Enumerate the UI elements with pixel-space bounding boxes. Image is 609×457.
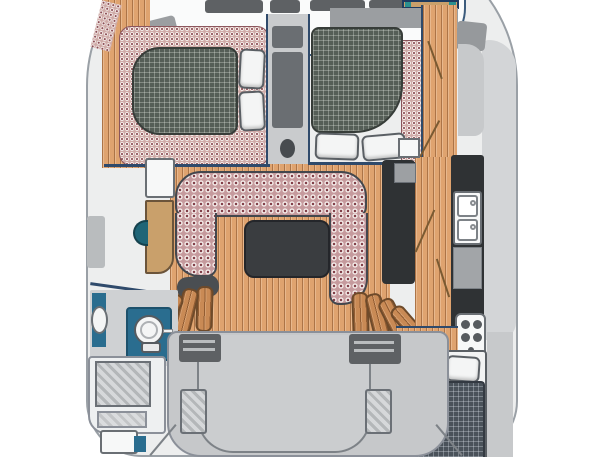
- console-locker-2: [272, 52, 303, 128]
- aft-stbd-hull-edge: [487, 332, 513, 457]
- shower-step: [97, 411, 147, 428]
- fwd-stbd-pillow-1: [315, 132, 360, 161]
- transom-step-port: [100, 430, 138, 454]
- hull-starboard-side-band: [482, 40, 516, 340]
- fwd-port-mattress: [132, 47, 238, 135]
- galley-sink-basin-2: [457, 219, 478, 241]
- shower-pan: [95, 361, 151, 407]
- fwd-port-pillow-1: [238, 48, 266, 89]
- companionway-door-port: [179, 334, 221, 362]
- settee-left-arm: [175, 213, 217, 277]
- door-stbd-tread-2: [354, 349, 394, 352]
- toilet-seat-ring: [140, 321, 158, 339]
- door-stbd-tread-1: [354, 341, 394, 344]
- salon-table: [244, 220, 330, 278]
- deck-hatch-2: [270, 0, 300, 13]
- deck-hatch-1: [205, 0, 263, 13]
- fwd-stbd-mattress: [311, 27, 403, 133]
- galley-sink-basin-1: [457, 195, 478, 217]
- bulkhead-port-fwd: [104, 164, 270, 167]
- galley-faucet-dot-2: [470, 224, 476, 230]
- galley-gray-locker: [394, 163, 416, 183]
- engine-hatch-port: [180, 389, 207, 434]
- stove-burner-4: [473, 333, 482, 342]
- salon-cabinet: [145, 200, 174, 274]
- engine-hatch-stbd: [365, 389, 392, 434]
- settee-top: [175, 171, 367, 217]
- door-port-tread-2: [183, 348, 215, 351]
- toilet-base: [141, 342, 161, 353]
- galley-appliance-small: [398, 138, 420, 158]
- companionway-door-stbd: [349, 334, 401, 364]
- fridge: [145, 158, 175, 198]
- stove-burner-3: [461, 333, 470, 342]
- cockpit-inner-floor: [197, 335, 371, 453]
- fwd-port-pillow-2: [238, 90, 266, 131]
- transom-teal-accent: [134, 436, 146, 452]
- galley-counter-gray-mid: [453, 247, 482, 289]
- stove-burner-1: [461, 320, 470, 329]
- door-port-tread-1: [183, 340, 215, 343]
- anchor-locker-teal-left: [405, 2, 411, 7]
- galley-faucet-dot-1: [470, 200, 476, 206]
- hull-port-side-locker: [87, 216, 105, 268]
- toilet-bowl: [134, 315, 164, 345]
- stove-burner-2: [473, 320, 482, 329]
- fwd-stbd-hull-nook: [458, 44, 484, 136]
- console-locker-1: [272, 26, 303, 48]
- galley-double-sink: [453, 191, 482, 245]
- aft-stbd-pillow-2: [445, 355, 481, 383]
- floor-plan-canvas: [0, 0, 609, 457]
- console-hatch-oval: [280, 139, 295, 158]
- galley-walkway: [415, 157, 452, 337]
- head-wash-basin: [91, 306, 108, 334]
